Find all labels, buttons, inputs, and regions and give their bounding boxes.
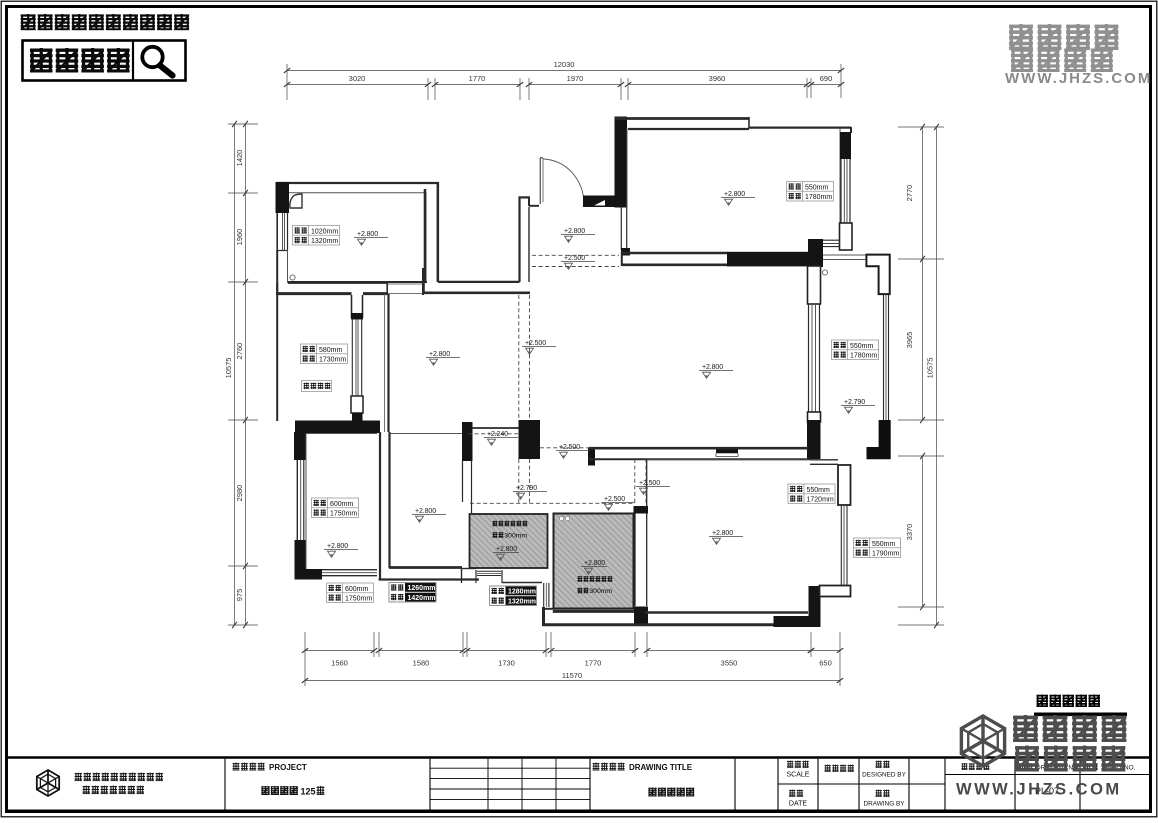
svg-text:12030: 12030 [554, 60, 575, 69]
svg-text:+2.800: +2.800 [357, 231, 378, 238]
svg-text:600mm: 600mm [330, 501, 354, 508]
svg-text:3020: 3020 [349, 74, 366, 83]
svg-text:+2.800: +2.800 [712, 530, 733, 537]
svg-text:1780mm: 1780mm [850, 353, 877, 360]
svg-text:10575: 10575 [224, 358, 233, 379]
svg-text:580mm: 580mm [319, 347, 343, 354]
svg-text:2980: 2980 [235, 485, 244, 502]
svg-text:1420mm: 1420mm [408, 595, 436, 602]
svg-text:1730: 1730 [498, 659, 515, 668]
svg-text:1780mm: 1780mm [805, 194, 832, 201]
svg-text:2760: 2760 [235, 343, 244, 360]
svg-text:+2.800: +2.800 [564, 228, 585, 235]
svg-text:DESIGNED BY: DESIGNED BY [862, 772, 906, 779]
svg-text:3965: 3965 [905, 332, 914, 349]
svg-text:300mm: 300mm [504, 533, 527, 540]
svg-text:1420: 1420 [235, 150, 244, 167]
svg-text:690: 690 [820, 74, 833, 83]
svg-text:+2.500: +2.500 [525, 340, 546, 347]
svg-text:550mm: 550mm [807, 487, 831, 494]
svg-text:+2.500: +2.500 [639, 480, 660, 487]
svg-text:+2.800: +2.800 [584, 560, 605, 567]
svg-text:1320mm: 1320mm [508, 598, 536, 605]
svg-text:550mm: 550mm [850, 343, 874, 350]
svg-text:1730mm: 1730mm [319, 357, 346, 364]
svg-text:PROJECT: PROJECT [269, 763, 307, 772]
svg-text:550mm: 550mm [872, 541, 896, 548]
svg-text:1720mm: 1720mm [807, 497, 834, 504]
svg-text:125: 125 [301, 787, 316, 797]
svg-text:WWW.JHZS.COM: WWW.JHZS.COM [1005, 70, 1152, 87]
svg-text:1750mm: 1750mm [345, 596, 372, 603]
svg-text:1960: 1960 [235, 229, 244, 246]
svg-text:+2.800: +2.800 [702, 364, 723, 371]
svg-text:3550: 3550 [721, 659, 738, 668]
svg-text:+2.500: +2.500 [604, 496, 625, 503]
svg-text:1970: 1970 [567, 74, 584, 83]
svg-text:+2.800: +2.800 [429, 351, 450, 358]
svg-text:+2.500: +2.500 [559, 444, 580, 451]
svg-text:+2.790: +2.790 [844, 399, 865, 406]
svg-text:2770: 2770 [905, 185, 914, 202]
svg-text:11570: 11570 [562, 671, 582, 680]
svg-text:1260mm: 1260mm [408, 585, 436, 592]
svg-text:1770: 1770 [469, 74, 486, 83]
svg-text:1320mm: 1320mm [311, 238, 338, 245]
svg-text:1580: 1580 [413, 659, 430, 668]
svg-text:+2.800: +2.800 [496, 546, 517, 553]
svg-text:975: 975 [235, 589, 244, 602]
svg-text:1280mm: 1280mm [508, 589, 536, 596]
svg-text:1790mm: 1790mm [872, 551, 899, 558]
svg-text:DRAWING BY: DRAWING BY [864, 801, 906, 808]
svg-text:600mm: 600mm [345, 586, 369, 593]
svg-text:+2.240: +2.240 [487, 431, 508, 438]
svg-text:+2.800: +2.800 [724, 191, 745, 198]
svg-text:3960: 3960 [709, 74, 726, 83]
svg-text:550mm: 550mm [805, 185, 829, 192]
svg-text:WWW.JHZS.COM: WWW.JHZS.COM [956, 781, 1122, 799]
svg-text:1770: 1770 [585, 659, 602, 668]
svg-text:1020mm: 1020mm [311, 229, 338, 236]
svg-text:10575: 10575 [926, 358, 935, 379]
svg-text:+2.500: +2.500 [564, 255, 585, 262]
svg-text:300mm: 300mm [589, 588, 612, 595]
svg-text:DRAWING TITLE: DRAWING TITLE [629, 763, 693, 772]
svg-text:1750mm: 1750mm [330, 511, 357, 518]
svg-text:DATE: DATE [789, 801, 807, 808]
svg-text:1560: 1560 [331, 659, 348, 668]
svg-text:+2.800: +2.800 [415, 508, 436, 515]
svg-text:650: 650 [819, 659, 832, 668]
svg-text:+2.800: +2.800 [327, 543, 348, 550]
svg-text:SCALE: SCALE [787, 772, 810, 779]
svg-text:+2.790: +2.790 [516, 485, 537, 492]
svg-text:3370: 3370 [905, 524, 914, 541]
